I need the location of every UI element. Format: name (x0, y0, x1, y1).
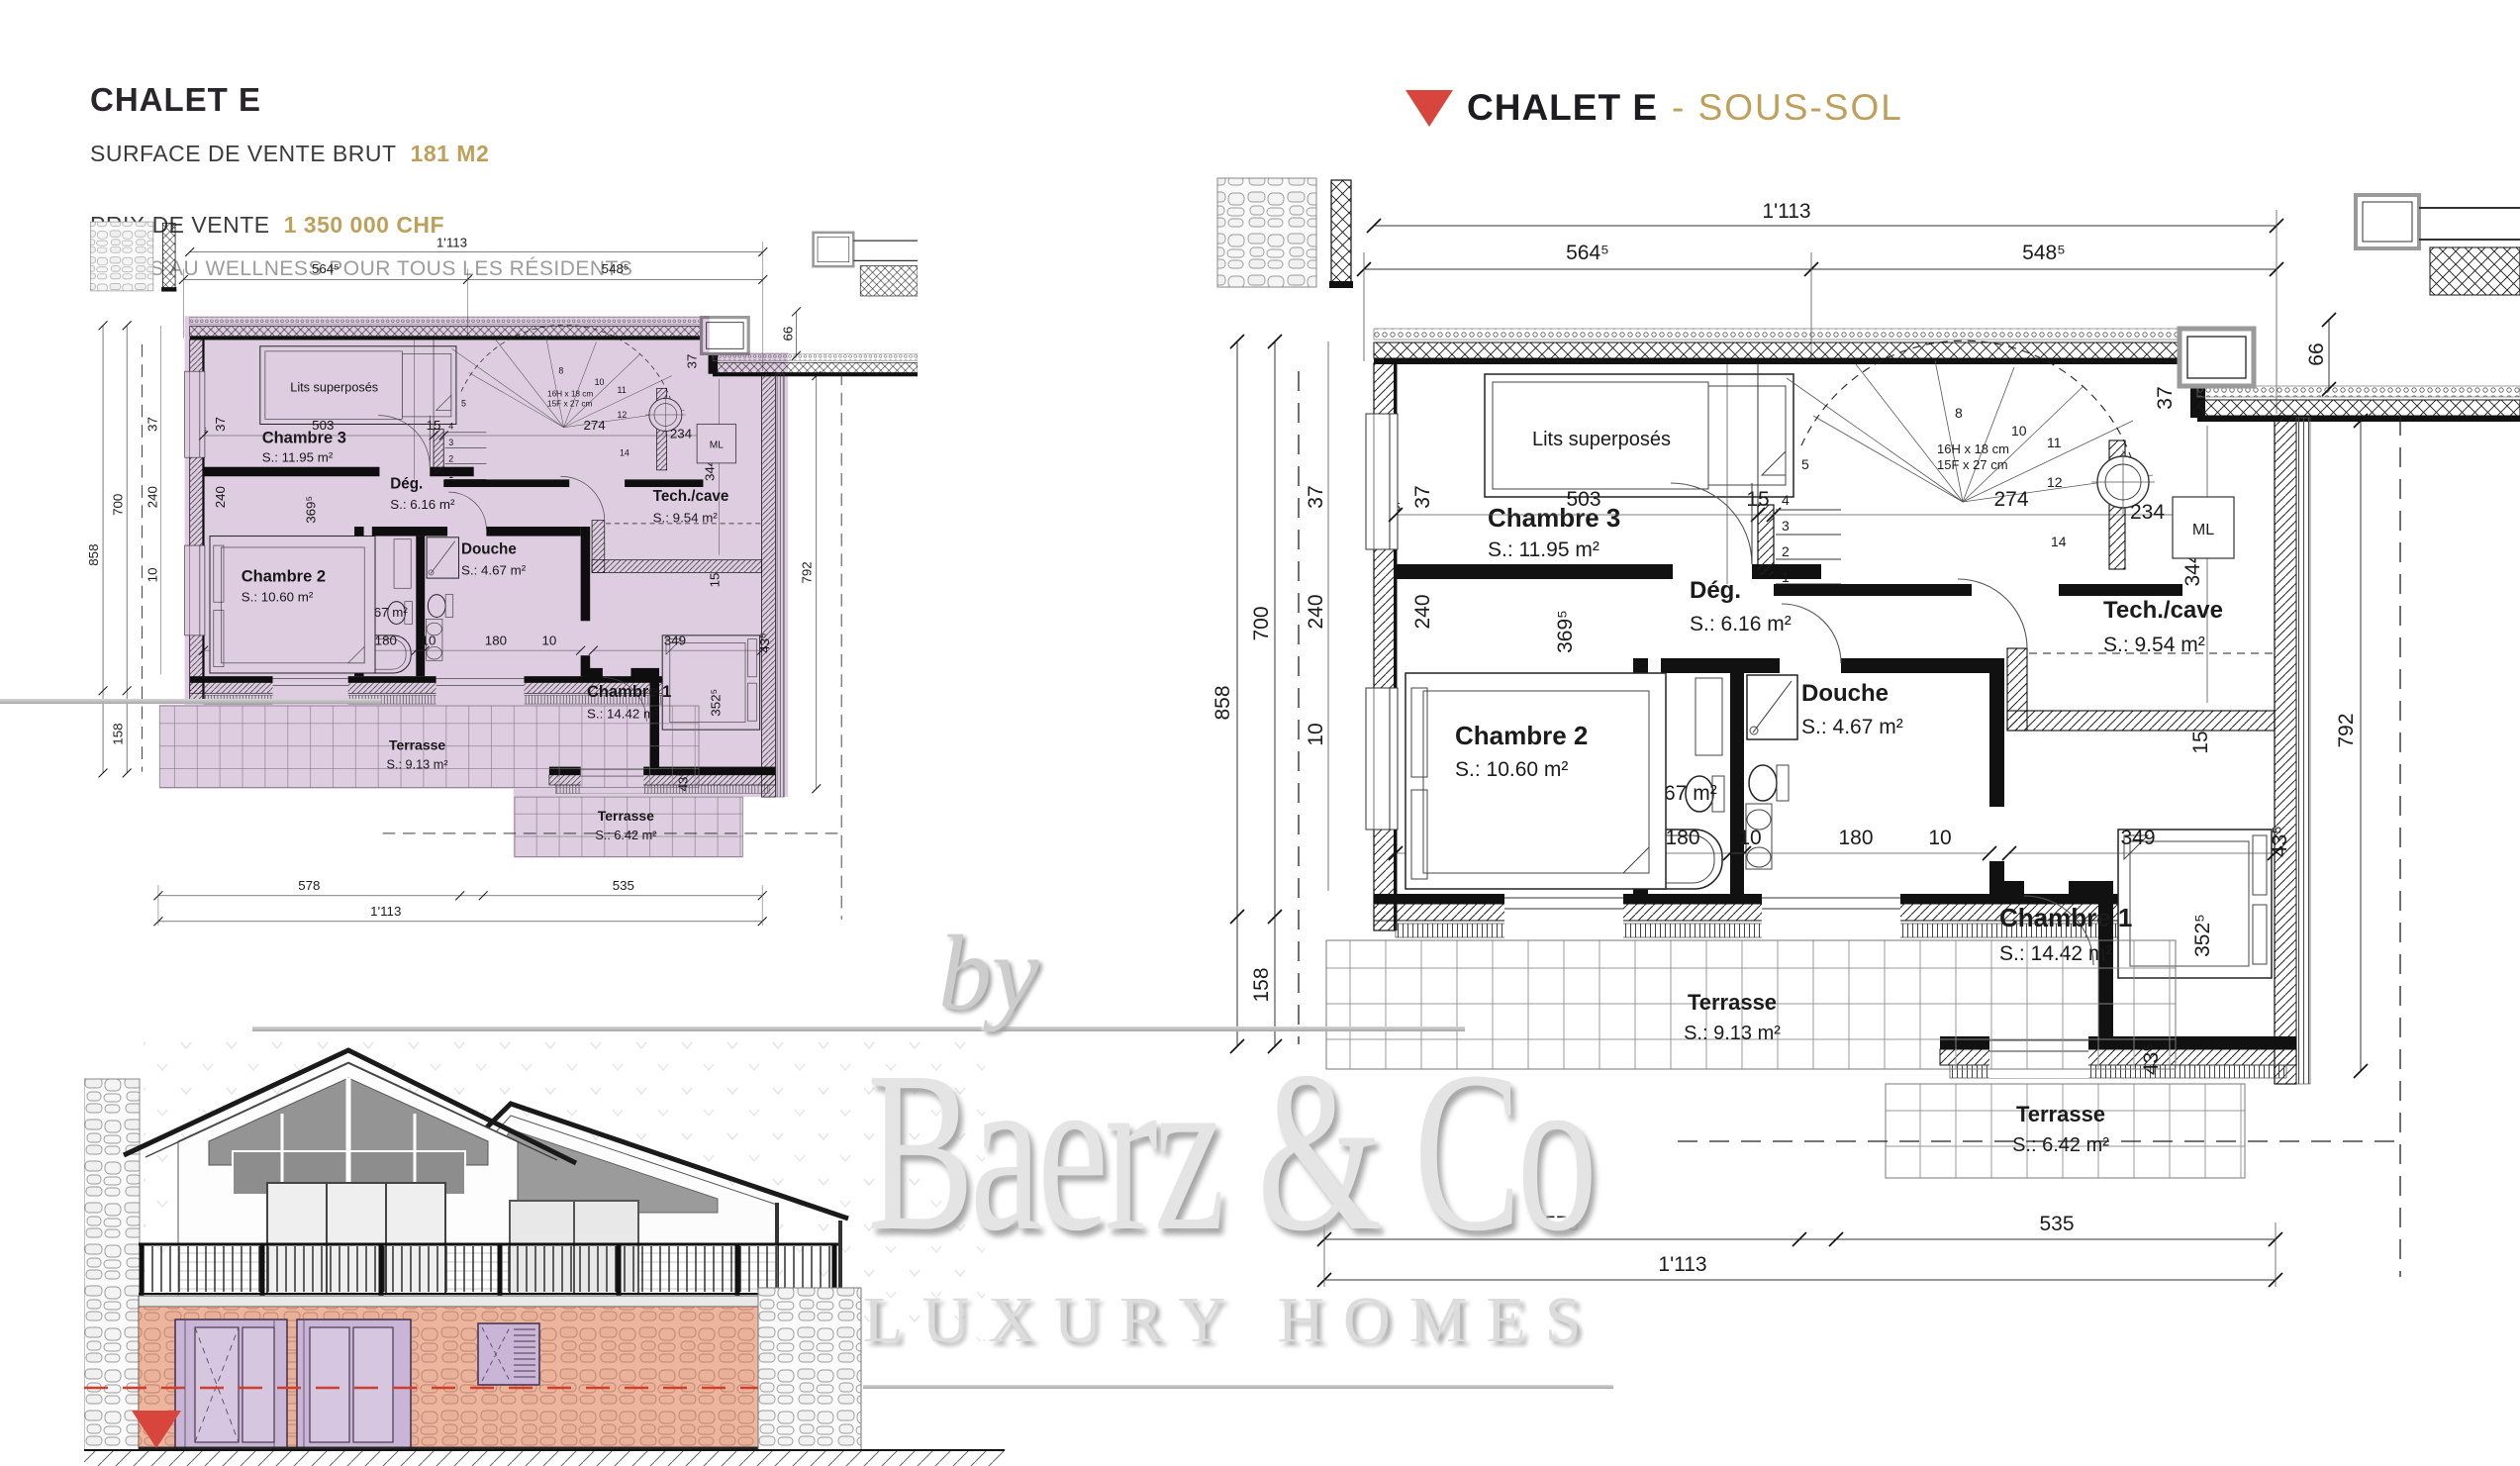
plan-subtitle: - SOUS-SOL (1672, 87, 1903, 129)
elevation-drawing (84, 1034, 1015, 1466)
plan-header: CHALET E - SOUS-SOL (1405, 87, 1903, 129)
surface-line: SURFACE DE VENTE BRUT181 M2 (90, 141, 489, 167)
page-title: CHALET E (90, 81, 261, 119)
basement-level (84, 1307, 767, 1450)
watermark-rule (0, 699, 381, 704)
basement-door (297, 1319, 411, 1448)
basement-door (175, 1319, 287, 1448)
watermark-rule (252, 1026, 1465, 1031)
surface-label: SURFACE DE VENTE BRUT (90, 141, 397, 166)
stone-wall (84, 1079, 140, 1450)
ground (84, 1450, 1005, 1466)
stone-pier (758, 1288, 861, 1450)
floor-plan-large (1208, 148, 2520, 1336)
watermark-by: by (938, 913, 1039, 1035)
watermark-rule (863, 1385, 1613, 1389)
plan-title: CHALET E (1467, 87, 1658, 129)
purple-highlight-overlay (159, 316, 788, 857)
basement-window (478, 1323, 539, 1385)
page: { "info_panel": { "title": "CHALET E", "… (0, 0, 2520, 1466)
glazed-door (267, 1183, 445, 1294)
surface-value: 181 M2 (411, 141, 490, 166)
red-triangle-icon (1405, 90, 1453, 127)
floor-plan-small (84, 203, 918, 957)
